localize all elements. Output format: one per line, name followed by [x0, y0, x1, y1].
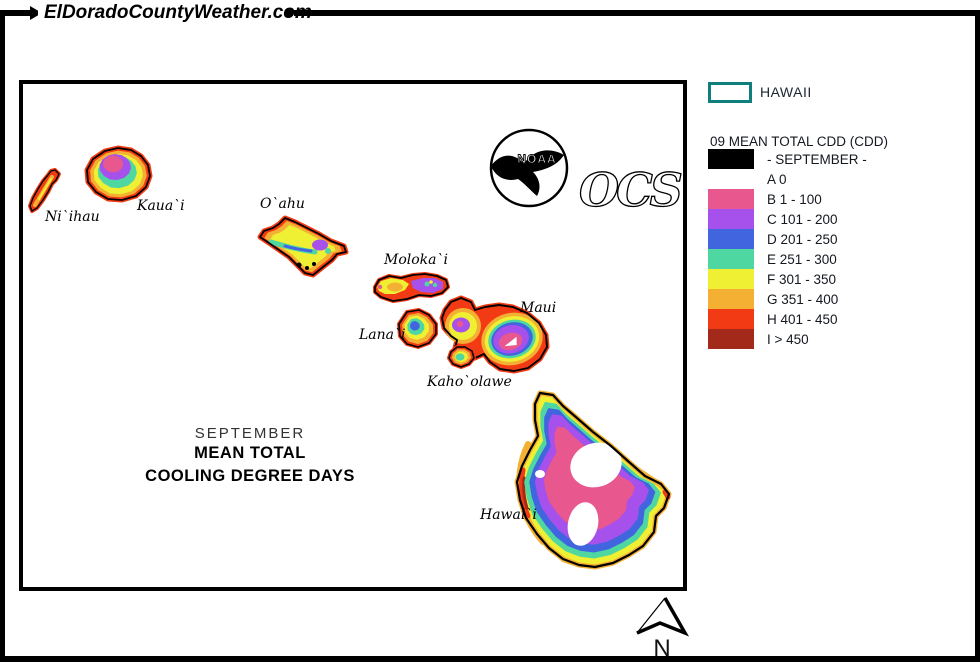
legend-row: C 101 - 200 — [708, 209, 867, 229]
island-label-kauai: Kaua`i — [137, 198, 185, 214]
site-title: ElDoradoCountyWeather.com — [38, 2, 318, 24]
island-label-oahu: O`ahu — [260, 196, 305, 212]
noaa-logo: NOAA — [491, 130, 567, 206]
frame-dot-cap — [286, 9, 294, 17]
legend-row-label: C 101 - 200 — [767, 212, 838, 227]
north-arrow: N — [630, 592, 710, 662]
map-caption: SEPTEMBER MEAN TOTAL COOLING DEGREE DAYS — [118, 425, 382, 488]
legend-swatch — [708, 289, 754, 309]
frame-bottom-border — [0, 656, 980, 662]
legend-row-label: B 1 - 100 — [767, 192, 822, 207]
legend-row: G 351 - 400 — [708, 289, 867, 309]
legend-title: 09 MEAN TOTAL CDD (CDD) — [710, 134, 888, 149]
legend-row: D 201 - 250 — [708, 229, 867, 249]
island-label-maui: Maui — [520, 300, 556, 316]
legend-swatch — [708, 169, 754, 189]
page: ElDoradoCountyWeather.com — [0, 0, 980, 662]
legend-row: I > 450 — [708, 329, 867, 349]
legend-row-label: F 301 - 350 — [767, 272, 836, 287]
island-oahu — [260, 218, 346, 275]
island-kahoolawe — [449, 346, 477, 367]
frame-top-right-segment — [294, 10, 980, 16]
island-label-lanai: Lana`i — [359, 327, 405, 343]
legend-row: B 1 - 100 — [708, 189, 867, 209]
legend-row: - SEPTEMBER - — [708, 149, 867, 169]
hawaii-region-swatch — [708, 82, 752, 103]
caption-month: SEPTEMBER — [118, 425, 382, 442]
island-niihau — [30, 170, 59, 211]
legend-swatch — [708, 189, 754, 209]
legend-row-label: A 0 — [767, 172, 787, 187]
legend-swatch — [708, 209, 754, 229]
legend-swatch — [708, 149, 754, 169]
legend-row-label: E 251 - 300 — [767, 252, 837, 267]
legend-row: E 251 - 300 — [708, 249, 867, 269]
legend-swatch — [708, 229, 754, 249]
legend-row: A 0 — [708, 169, 867, 189]
island-label-niihau: Ni`ihau — [45, 209, 100, 225]
map-canvas: NOAA OCS Ni`ihau Kaua`i O`ahu Moloka`i L… — [23, 84, 683, 587]
legend-rows: - SEPTEMBER -A 0B 1 - 100C 101 - 200D 20… — [708, 149, 867, 349]
ocs-logo-text: OCS — [579, 163, 682, 217]
legend-row: H 401 - 450 — [708, 309, 867, 329]
legend-swatch — [708, 309, 754, 329]
legend-swatch — [708, 329, 754, 349]
island-label-molokai: Moloka`i — [384, 252, 448, 268]
legend-row-label: D 201 - 250 — [767, 232, 838, 247]
map-frame: NOAA OCS Ni`ihau Kaua`i O`ahu Moloka`i L… — [19, 80, 687, 591]
caption-measure: MEAN TOTAL — [118, 442, 382, 465]
caption-units: COOLING DEGREE DAYS — [118, 465, 382, 488]
legend-swatch — [708, 249, 754, 269]
frame-right-border — [975, 10, 980, 662]
legend-row-label: I > 450 — [767, 332, 809, 347]
legend-row-label: G 351 - 400 — [767, 292, 838, 307]
north-arrow-label: N — [653, 635, 670, 662]
island-molokai — [375, 274, 448, 301]
hawaii-region-label: HAWAII — [760, 84, 812, 100]
island-hawaii-big — [517, 393, 669, 567]
legend-swatch — [708, 269, 754, 289]
hawaii-islands-map: NOAA OCS — [23, 84, 683, 587]
island-label-hawaii: Hawai`i — [480, 507, 537, 523]
noaa-logo-text: NOAA — [517, 152, 556, 166]
island-label-kahoolawe: Kaho`olawe — [427, 374, 512, 390]
frame-left-border — [0, 10, 5, 662]
legend-row: F 301 - 350 — [708, 269, 867, 289]
legend-row-label: - SEPTEMBER - — [767, 152, 867, 167]
island-kauai — [87, 148, 150, 200]
legend-row-label: H 401 - 450 — [767, 312, 838, 327]
